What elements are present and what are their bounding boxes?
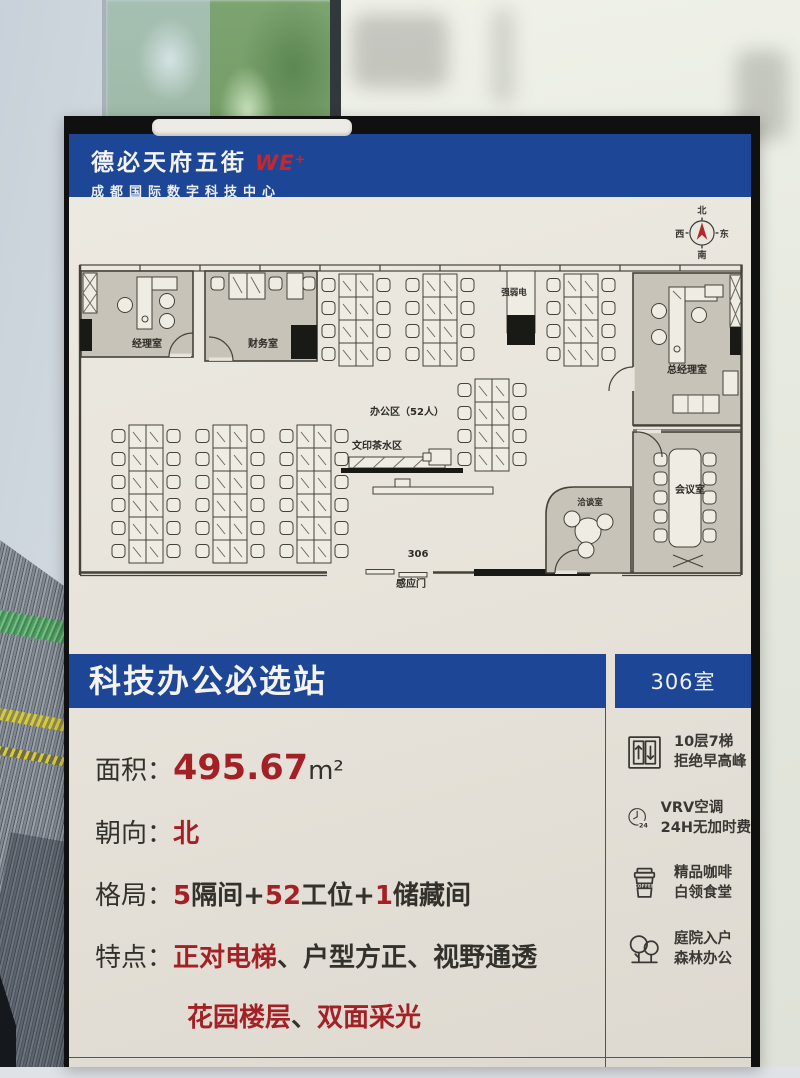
feature-separator: 、 <box>407 943 433 973</box>
amenity-line1: 10层7梯 <box>674 732 747 752</box>
area-value: 495.67 <box>173 748 308 788</box>
glass-reflection <box>352 14 448 88</box>
banner-title: 科技办公必选站 <box>69 654 606 708</box>
trees-icon <box>626 931 663 968</box>
floorplan-section: 北 东 南 西 <box>69 197 751 654</box>
features-row-2: 花园楼层、双面采光 <box>95 997 599 1034</box>
feature-separator: 、 <box>291 1003 317 1033</box>
compass-needle <box>697 222 708 239</box>
amenity-text: VRV空调 24H无加时费 <box>661 798 751 839</box>
layout-storage-count: 1 <box>375 881 393 911</box>
label-room-number: 306 <box>408 549 429 560</box>
banner-room-number: 306室 <box>615 654 751 708</box>
amenity-line2: 森林办公 <box>674 949 732 969</box>
brand-logo-we: WE⁺ <box>255 151 307 175</box>
amenity-text: 10层7梯 拒绝早高峰 <box>674 732 747 773</box>
coffee-icon: COFFEE <box>626 865 663 902</box>
orientation-row: 朝向：北 <box>95 813 599 850</box>
feature-separator: 、 <box>277 943 303 973</box>
layout-plus: + <box>353 881 375 911</box>
orientation-value: 北 <box>173 819 199 849</box>
poster-header: 德必天府五街 WE⁺ 成都国际数字科技中心 <box>69 134 751 197</box>
feature-open-view: 视野通透 <box>433 943 537 973</box>
details-section: 面积：495.67m² 朝向：北 格局：5隔间+52工位+1储藏间 特点：正对电… <box>69 708 751 1067</box>
banner-divider-gap <box>606 654 615 708</box>
clock-24h-icon: 24 <box>626 799 650 836</box>
striped-carpet <box>0 540 66 1067</box>
layout-rooms-count: 5 <box>173 881 191 911</box>
amenity-line1: 庭院入户 <box>674 929 732 949</box>
amenity-line2: 白领食堂 <box>674 883 732 903</box>
compass-west-label: 西 <box>675 229 684 240</box>
poster-body: 德必天府五街 WE⁺ 成都国际数字科技中心 北 东 南 西 <box>69 134 751 1067</box>
amenity-line1: VRV空调 <box>661 798 751 818</box>
area-label: 面积： <box>95 756 173 786</box>
layout-label: 格局： <box>95 881 173 911</box>
feature-double-light: 双面采光 <box>317 1003 421 1033</box>
amenity-line2: 24H无加时费 <box>661 818 751 838</box>
poster-bottom-rule <box>69 1057 751 1058</box>
layout-desks-count: 52 <box>265 881 301 911</box>
banner-row: 科技办公必选站 306室 <box>69 654 751 708</box>
layout-row: 格局：5隔间+52工位+1储藏间 <box>95 875 599 912</box>
coffee-badge: COFFEE <box>635 883 655 888</box>
amenity-text: 精品咖啡 白领食堂 <box>674 863 732 904</box>
layout-rooms-text: 隔间 <box>191 881 243 911</box>
feature-elevator: 正对电梯 <box>173 943 277 973</box>
amenity-line2: 拒绝早高峰 <box>674 752 747 772</box>
layout-storage-text: 储藏间 <box>393 881 471 911</box>
area-unit: m² <box>308 756 344 786</box>
room-label-electrical: 强弱电 <box>501 287 527 298</box>
layout-plus: + <box>243 881 265 911</box>
label-sensor-door: 感应门 <box>396 577 426 589</box>
label-office-area: 办公区（52人） <box>370 405 444 418</box>
details-left-column: 面积：495.67m² 朝向：北 格局：5隔间+52工位+1储藏间 特点：正对电… <box>69 708 605 1067</box>
room-label-manager: 经理室 <box>132 337 162 350</box>
room-label-meeting: 会议室 <box>675 483 705 496</box>
area-row: 面积：495.67m² <box>95 748 599 788</box>
amenity-coffee: COFFEE 精品咖啡 白领食堂 <box>626 863 751 904</box>
feature-garden-floor: 花园楼层 <box>187 1003 291 1033</box>
amenity-text: 庭院入户 森林办公 <box>674 929 732 970</box>
orientation-label: 朝向： <box>95 819 173 849</box>
clock-24-badge: 24 <box>639 822 649 830</box>
features-label: 特点： <box>95 943 173 973</box>
amenity-elevator: 10层7梯 拒绝早高峰 <box>626 732 751 773</box>
brand-name: 德必天府五街 <box>91 143 247 177</box>
floorplan-poster: 德必天府五街 WE⁺ 成都国际数字科技中心 北 东 南 西 <box>64 116 760 1067</box>
glass-reflection <box>492 8 514 104</box>
features-row-1: 特点：正对电梯、户型方正、视野通透 <box>95 937 599 974</box>
photo-of-floorplan-poster: { "header": { "brand": "德必天府五街", "brand_… <box>0 0 800 1067</box>
amenities-column: 10层7梯 拒绝早高峰 24 VRV空调 24H无加时费 <box>605 708 751 1067</box>
compass-east-label: 东 <box>720 228 729 240</box>
amenity-garden: 庭院入户 森林办公 <box>626 929 751 970</box>
room-label-general-manager: 总经理室 <box>667 363 707 376</box>
room-label-finance: 财务室 <box>247 337 278 350</box>
layout-desks-text: 工位 <box>301 881 353 911</box>
compass-icon: 北 东 南 西 <box>673 203 731 261</box>
label-print-tea: 文印茶水区 <box>352 439 402 452</box>
elevator-icon <box>626 734 663 771</box>
poster-hanger-clip <box>152 119 352 136</box>
amenity-line1: 精品咖啡 <box>674 863 732 883</box>
floorplan-drawing: 经理室 财务室 强弱电 <box>77 257 745 589</box>
amenity-hvac: 24 VRV空调 24H无加时费 <box>626 798 751 839</box>
compass-north-label: 北 <box>697 205 707 217</box>
room-label-negotiation: 洽谈室 <box>577 497 603 508</box>
feature-square-layout: 户型方正 <box>303 943 407 973</box>
